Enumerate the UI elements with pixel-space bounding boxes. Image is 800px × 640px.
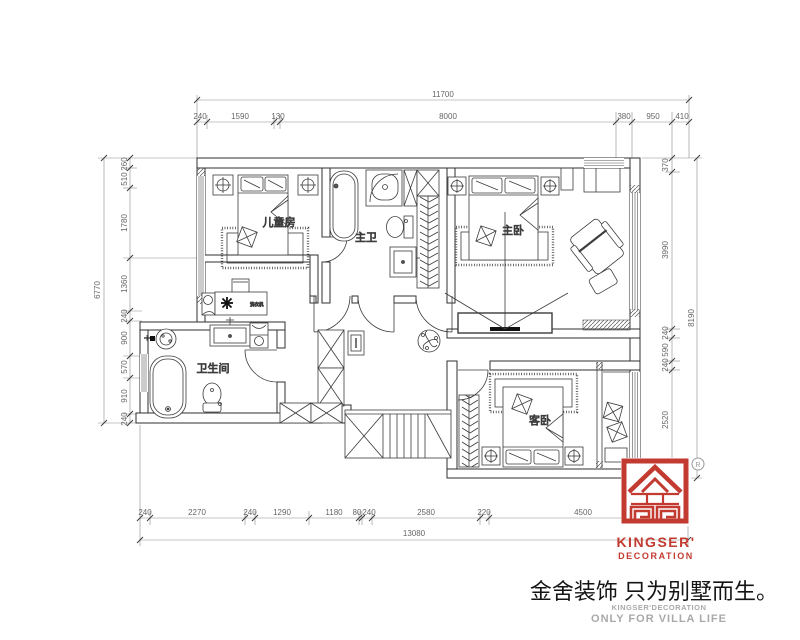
tagline-en-1: KINGSER'DECORATION [612,603,707,612]
dim-top-overall: 11700 [432,90,454,99]
balcony [603,372,630,462]
kingser-logo: R KINGSER' DECORATION [616,458,704,561]
toilet [387,216,414,238]
washing-machine [144,329,176,349]
dim-right-overall: 8190 [687,309,696,327]
room-label-masterbath: 主卫 [355,231,377,244]
dim-label: 1360 [120,275,129,293]
dim-label: 220 [477,508,491,517]
room-label-guest: 客卧 [529,413,551,427]
dim-label: 2580 [417,508,435,517]
dim-label: 2520 [661,411,670,429]
dim-label: 1180 [325,508,343,517]
room-label-children: 儿童房 [263,215,296,229]
svg-text:R: R [695,462,700,469]
floor-plan-page: 11700 240 1590 130 8000 380 950 410 6770… [0,0,800,640]
electric-box [348,331,364,355]
under-stair-closet [280,403,342,423]
toilet [203,383,222,412]
ottoman [588,268,618,295]
dim-label: 590 [661,343,670,357]
ceiling-light [298,175,318,195]
ceiling-light [213,175,233,195]
bathtub [150,356,186,418]
sink-vanity [390,247,420,277]
dim-label: 240 [138,508,152,517]
room-label-bathroom: 卫生间 [197,361,230,375]
door-hall-nook [314,296,350,332]
dim-label: 410 [675,112,689,121]
dim-label: 910 [120,389,129,403]
dim-label: 240 [120,309,129,323]
drying-rack [417,196,439,288]
dim-label: 240 [193,112,207,121]
door-hall-masterbath [358,296,394,332]
floor-plan-drawing: 11700 240 1590 130 8000 380 950 410 6770… [0,0,800,640]
door-bathroom [245,350,277,382]
tagline-chinese: 金舍装饰 只为别墅而生。 [530,579,778,604]
children-room: 儿童房 [213,175,318,268]
ceiling-light [565,447,583,465]
window-guest-balcony-divider [596,362,603,468]
dim-label: 240 [243,508,257,517]
dim-label: 260 [120,157,129,171]
dim-label: 240 [120,412,129,426]
dim-bottom-overall: 13080 [403,529,426,538]
ceiling-light [448,177,466,195]
window-master-right [630,185,640,317]
logo-wordmark: KINGSER' [616,534,695,550]
dim-label: 80 [353,508,362,517]
cushion [603,402,623,422]
window-bathroom-left [140,354,148,392]
dim-label: 900 [120,331,129,345]
window-children-left [197,168,205,304]
staircase [345,410,451,458]
room-label-master: 主卧 [502,224,524,237]
laundry-label: 洗衣机 [250,301,264,308]
dim-label: 240 [362,508,376,517]
dim-label: 570 [120,360,129,374]
bed [469,176,538,260]
bathroom: 卫生间 [144,317,268,418]
ceiling-light [541,177,559,195]
dim-label: 3990 [661,241,670,259]
shower [366,170,402,206]
window-sill-hatch [583,320,630,330]
tagline-en-2: ONLY FOR VILLA LIFE [591,613,727,625]
duct-shaft [318,330,344,406]
master-bedroom: 主卧 [445,176,629,333]
ceiling-light [482,447,500,465]
dim-label: 130 [271,112,285,121]
floor-drain-star [221,297,233,309]
brand-tagline: 金舍装饰 只为别墅而生。 KINGSER'DECORATION ONLY FOR… [530,579,778,625]
dim-label: 240 [661,358,670,372]
bed [503,387,563,467]
dim-label: 240 [661,326,670,340]
window-balcony-right [630,372,640,468]
cushion [607,422,628,443]
dim-label: 8000 [439,112,457,121]
window-top-right [584,158,624,168]
dim-label: 1590 [231,112,249,121]
dim-label: 2270 [188,508,206,517]
dim-left-overall: 6770 [93,281,102,299]
dim-label: 4500 [574,508,592,517]
laundry-nook: 洗衣机 [202,279,267,315]
logo-wordmark-sub: DECORATION [618,551,694,561]
niche [404,170,417,206]
dim-label: 370 [661,158,670,172]
bathtub [330,171,358,241]
lounge-chair [565,215,629,279]
master-bathroom: 主卫 [330,170,439,288]
linen-cabinet [417,170,439,196]
registered-mark: R [692,458,704,470]
plant [418,330,440,352]
dim-label: 950 [646,112,660,121]
dim-label: 510 [120,172,129,186]
guest-bedroom: 客卧 [459,374,583,467]
sink-vanity [210,317,250,346]
side-cabinet [250,323,268,348]
dim-label: 380 [617,112,631,121]
dim-label: 1290 [273,508,291,517]
dim-label: 1780 [120,214,129,232]
wardrobe-rack [459,395,479,467]
